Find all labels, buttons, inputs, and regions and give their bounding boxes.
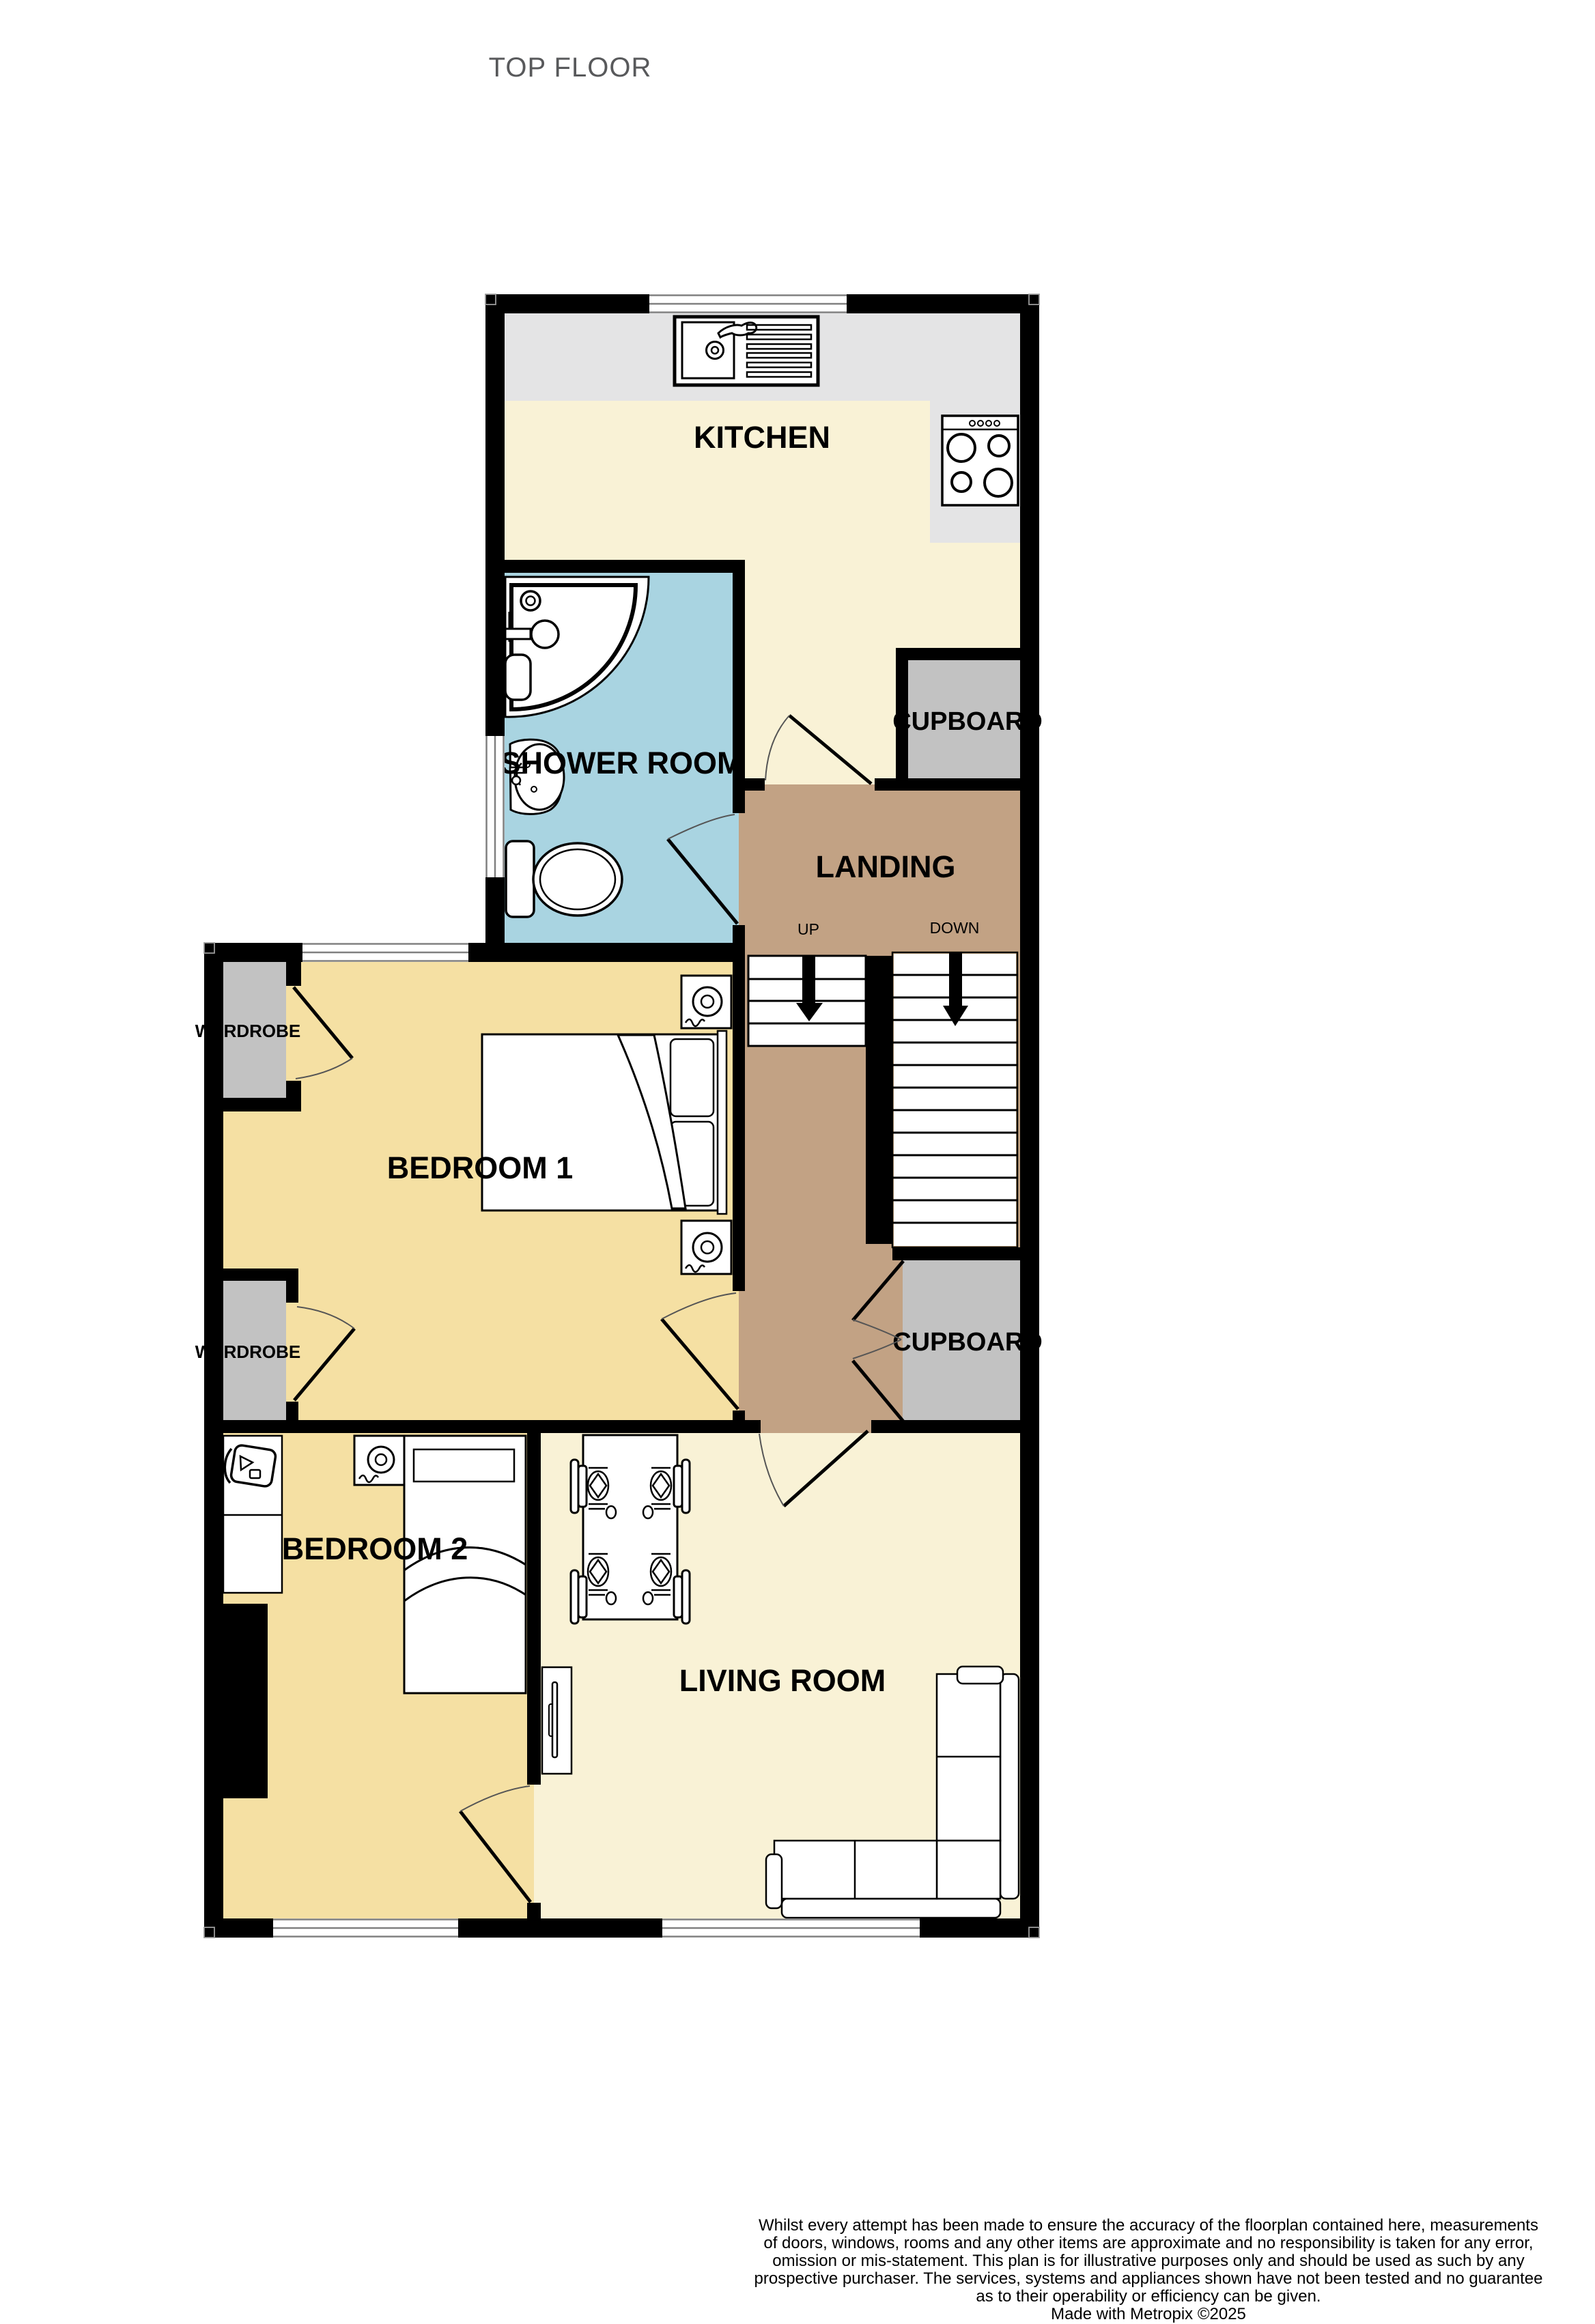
svg-text:TOP FLOOR: TOP FLOOR xyxy=(489,53,652,83)
svg-text:prospective purchaser. The ser: prospective purchaser. The services, sys… xyxy=(754,2269,1543,2288)
svg-text:CUPBOARD: CUPBOARD xyxy=(892,1328,1043,1357)
svg-text:Made with Metropix ©2025: Made with Metropix ©2025 xyxy=(1051,2305,1246,2323)
svg-text:CUPBOARD: CUPBOARD xyxy=(892,707,1043,736)
svg-text:of doors, windows, rooms and a: of doors, windows, rooms and any other i… xyxy=(763,2234,1533,2252)
svg-text:omission or mis-statement. Thi: omission or mis-statement. This plan is … xyxy=(772,2252,1524,2270)
svg-text:Whilst every attempt has been: Whilst every attempt has been made to en… xyxy=(759,2216,1538,2235)
svg-text:BEDROOM 1: BEDROOM 1 xyxy=(387,1150,574,1185)
svg-text:as to their operability or eff: as to their operability or efficiency ca… xyxy=(976,2287,1321,2306)
svg-text:LIVING ROOM: LIVING ROOM xyxy=(679,1663,886,1698)
svg-text:UP: UP xyxy=(797,920,819,938)
svg-text:BEDROOM 2: BEDROOM 2 xyxy=(282,1531,468,1566)
svg-text:KITCHEN: KITCHEN xyxy=(694,420,830,455)
svg-text:LANDING: LANDING xyxy=(816,849,956,884)
svg-text:DOWN: DOWN xyxy=(930,919,980,937)
svg-text:SHOWER ROOM: SHOWER ROOM xyxy=(500,746,743,780)
